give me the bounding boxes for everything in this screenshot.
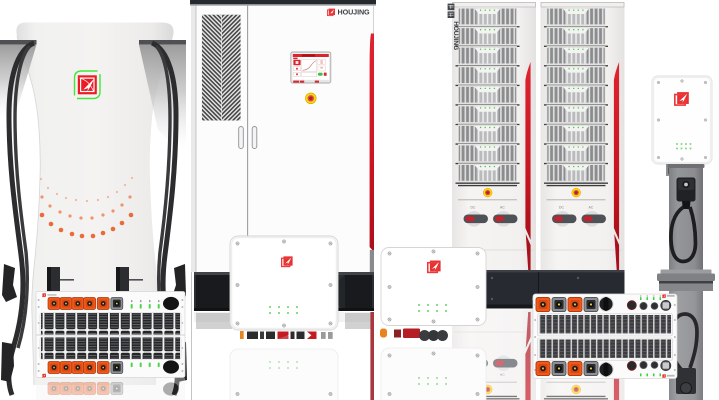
svg-text:HOUJING: HOUJING (338, 8, 371, 17)
svg-text:HOUJING: HOUJING (452, 21, 459, 50)
